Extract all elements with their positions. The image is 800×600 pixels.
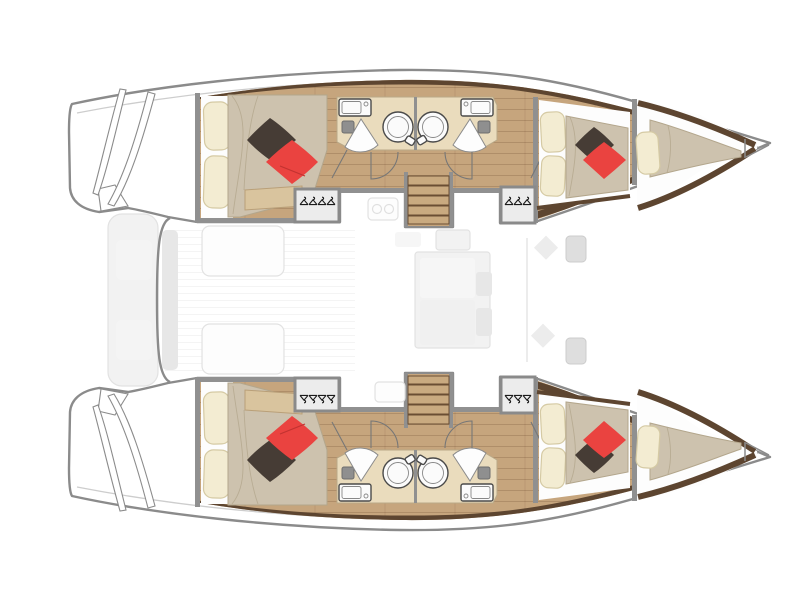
aft-bench-cushion (116, 240, 152, 280)
aft-bench-cushion (116, 320, 152, 360)
galley-stove (436, 230, 470, 250)
foredeck-hatch (566, 236, 586, 262)
foredeck-hatch (566, 338, 586, 364)
ghost-cushion (534, 236, 558, 260)
saloon-seat (476, 272, 492, 296)
galley-sink-starboard (375, 382, 405, 402)
saloon-cushion (420, 300, 475, 345)
galley-counter (395, 232, 421, 247)
floor-plan-canvas (0, 0, 800, 600)
cockpit-sofa (202, 324, 284, 374)
catamaran-floor-plan (0, 0, 800, 600)
saloon-seat (476, 308, 492, 336)
aft-bench (108, 214, 158, 386)
ghost-cushion (531, 324, 555, 348)
center-deck (108, 214, 586, 386)
saloon-cushion (420, 258, 475, 298)
cockpit-table (202, 226, 284, 276)
cockpit-side-seat (162, 230, 178, 370)
